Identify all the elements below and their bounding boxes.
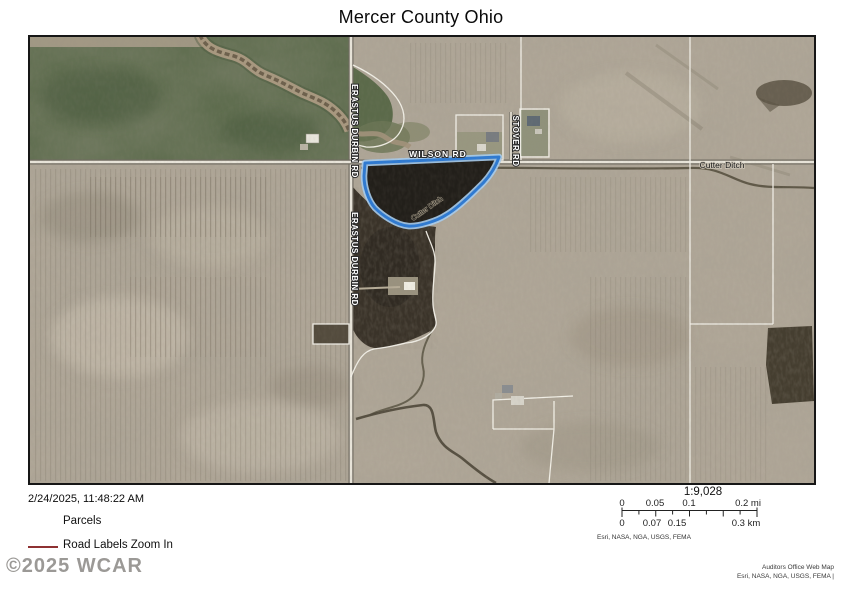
- legend-item-parcels: Parcels: [63, 515, 101, 527]
- scale-km-0: 0: [619, 518, 624, 529]
- scale-ratio: 1:9,028: [684, 486, 722, 498]
- scale-km-2: 0.15: [668, 518, 687, 529]
- page-title: Mercer County Ohio: [0, 7, 842, 28]
- legend-road-line-symbol: [28, 546, 58, 548]
- export-timestamp: 2/24/2025, 11:48:22 AM: [28, 493, 144, 505]
- map-credits: Auditors Office Web Map Esri, NASA, NGA,…: [737, 563, 834, 581]
- label-erastus-durbin-rd-south: ERASTUS DURBIN RD: [350, 212, 359, 306]
- label-wilson-rd: WILSON RD: [409, 149, 467, 159]
- scale-attribution: Esri, NASA, NGA, USGS, FEMA: [597, 534, 691, 541]
- map-canvas[interactable]: WILSON RD ERASTUS DURBIN RD ERASTUS DURB…: [30, 37, 814, 483]
- legend-parcels-symbol: [28, 518, 58, 528]
- label-erastus-durbin-rd-north: ERASTUS DURBIN RD: [350, 84, 359, 178]
- copyright-watermark: ©2025 WCAR: [6, 555, 143, 578]
- credit-line-1: Auditors Office Web Map: [737, 563, 834, 572]
- grain-overlay: [30, 37, 814, 483]
- map-export-page: Mercer County Ohio: [0, 0, 842, 595]
- scale-km-3: 0.3 km: [732, 518, 761, 529]
- label-cutter-ditch: Cutter Ditch: [700, 160, 745, 170]
- credit-line-2: Esri, NASA, NGA, USGS, FEMA |: [737, 572, 834, 581]
- legend-item-road-labels: Road Labels Zoom In: [63, 539, 173, 551]
- map-viewport[interactable]: WILSON RD ERASTUS DURBIN RD ERASTUS DURB…: [28, 35, 816, 485]
- label-stover-rd: STOVER RD: [511, 115, 520, 166]
- scale-km-1: 0.07: [643, 518, 662, 529]
